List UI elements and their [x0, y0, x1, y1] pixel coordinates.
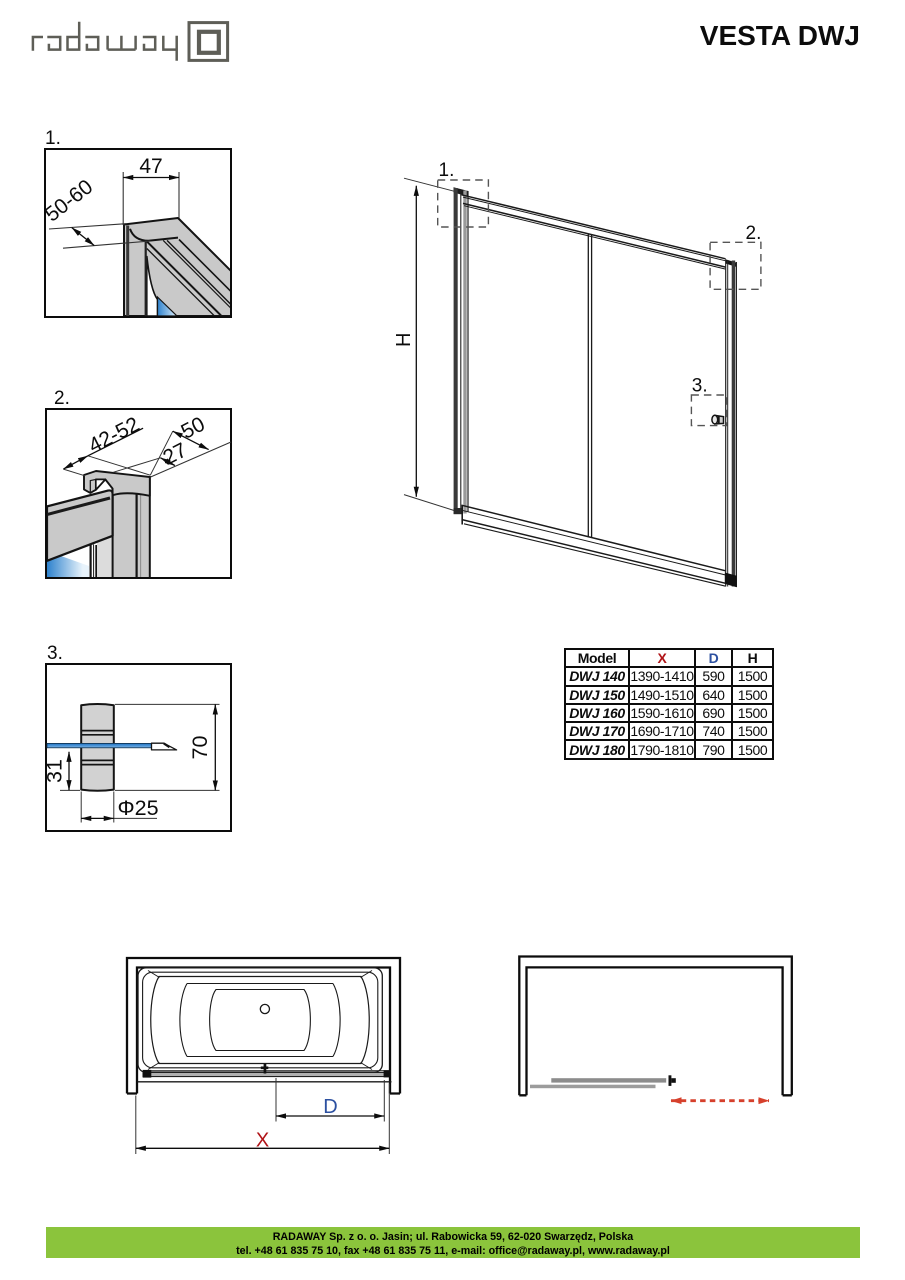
svg-text:2.: 2.	[746, 223, 762, 244]
svg-text:X: X	[256, 1130, 269, 1152]
svg-text:47: 47	[139, 155, 162, 178]
svg-text:1.: 1.	[45, 128, 61, 149]
svg-text:31: 31	[43, 759, 67, 783]
svg-text:H: H	[393, 333, 415, 347]
svg-text:3.: 3.	[692, 376, 708, 397]
svg-text:70: 70	[188, 736, 212, 760]
svg-text:Φ25: Φ25	[117, 796, 158, 820]
svg-text:1.: 1.	[439, 160, 455, 181]
svg-text:D: D	[323, 1096, 337, 1118]
svg-text:2.: 2.	[54, 388, 70, 409]
svg-text:3.: 3.	[47, 643, 63, 664]
